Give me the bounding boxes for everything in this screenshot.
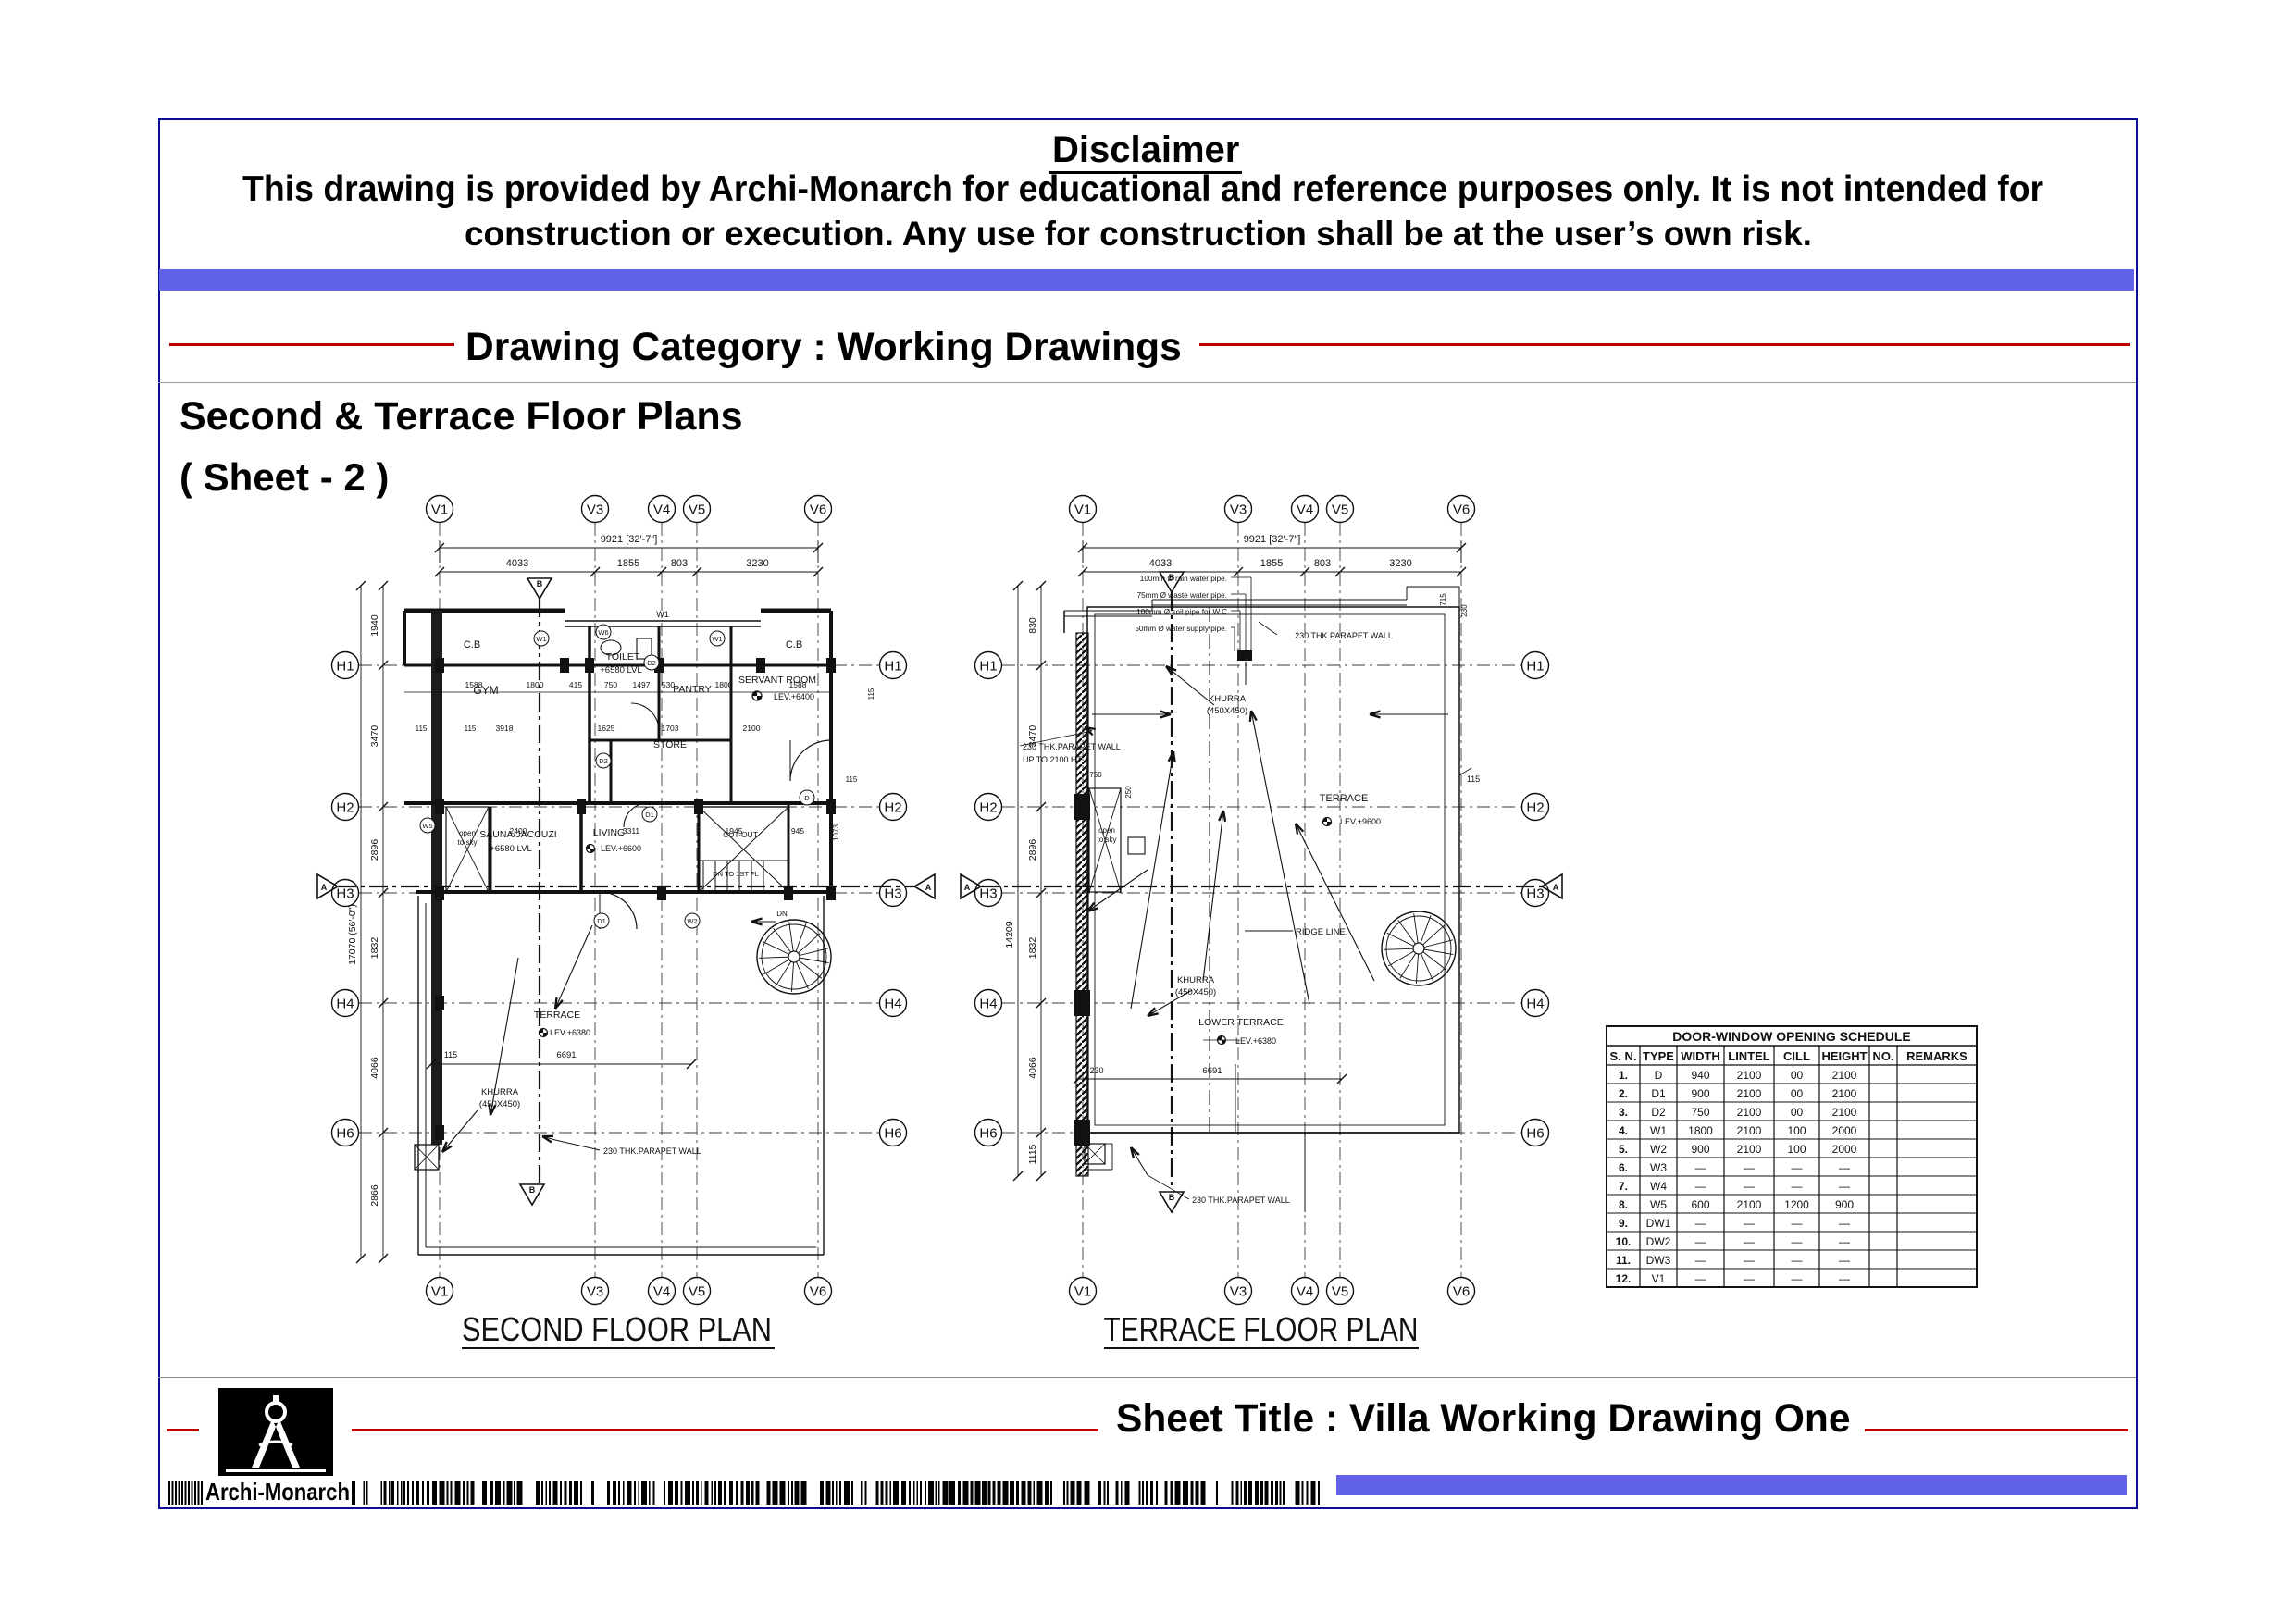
svg-text:1.: 1.: [1619, 1069, 1628, 1082]
svg-text:—: —: [1744, 1180, 1755, 1193]
svg-text:B: B: [1169, 573, 1175, 582]
svg-text:4066: 4066: [369, 1057, 380, 1079]
svg-text:4033: 4033: [1149, 558, 1172, 569]
svg-text:—: —: [1792, 1217, 1803, 1230]
svg-text:REMARKS: REMARKS: [1906, 1049, 1967, 1063]
svg-text:3311: 3311: [623, 826, 640, 836]
svg-text:SECOND FLOOR PLAN: SECOND FLOOR PLAN: [462, 1310, 772, 1348]
svg-text:LINTEL: LINTEL: [1728, 1049, 1770, 1063]
svg-text:6691: 6691: [1202, 1066, 1222, 1076]
svg-text:75mm Ø waste water pipe.: 75mm Ø waste water pipe.: [1137, 591, 1227, 600]
svg-text:KHURRA: KHURRA: [481, 1087, 519, 1097]
svg-text:2100: 2100: [1832, 1087, 1857, 1100]
svg-text:2000: 2000: [1832, 1124, 1857, 1137]
svg-text:D1: D1: [1651, 1087, 1666, 1100]
svg-text:100mm Ø rain water pipe.: 100mm Ø rain water pipe.: [1140, 575, 1227, 583]
svg-text:2100: 2100: [743, 724, 761, 733]
svg-text:2100: 2100: [1737, 1124, 1762, 1137]
svg-text:100: 100: [1787, 1124, 1806, 1137]
svg-text:V5: V5: [1332, 502, 1348, 517]
svg-text:115: 115: [444, 1050, 457, 1059]
svg-text:3230: 3230: [1389, 558, 1411, 569]
svg-text:H1: H1: [884, 658, 901, 674]
svg-text:1945: 1945: [726, 826, 743, 836]
svg-text:8.: 8.: [1619, 1198, 1628, 1211]
svg-text:6691: 6691: [556, 1050, 576, 1060]
svg-text:803: 803: [1314, 558, 1331, 569]
svg-text:115: 115: [1467, 774, 1480, 784]
svg-text:H2: H2: [1526, 799, 1544, 815]
svg-text:LEV.+9600: LEV.+9600: [1340, 817, 1381, 826]
svg-text:PANTRY: PANTRY: [673, 684, 712, 695]
svg-text:2100: 2100: [1737, 1143, 1762, 1156]
svg-text:1588: 1588: [789, 680, 807, 689]
svg-text:115: 115: [416, 725, 428, 733]
svg-text:1800: 1800: [715, 680, 733, 689]
svg-text:11.: 11.: [1616, 1254, 1631, 1267]
svg-text:RIDGE LINE.: RIDGE LINE.: [1296, 927, 1348, 937]
svg-text:2100: 2100: [1737, 1069, 1762, 1082]
svg-text:H3: H3: [1526, 886, 1544, 901]
svg-text:—: —: [1744, 1217, 1755, 1230]
svg-text:H6: H6: [979, 1125, 997, 1141]
svg-text:7.: 7.: [1619, 1180, 1628, 1193]
svg-text:TERRACE FLOOR PLAN: TERRACE FLOOR PLAN: [1104, 1310, 1419, 1348]
svg-text:—: —: [1695, 1217, 1706, 1230]
svg-text:TYPE: TYPE: [1643, 1049, 1674, 1063]
svg-text:—: —: [1695, 1180, 1706, 1193]
svg-text:V3: V3: [1230, 502, 1247, 517]
svg-text:DW1: DW1: [1646, 1217, 1671, 1230]
svg-text:230 THK.PARAPET WALL: 230 THK.PARAPET WALL: [1192, 1196, 1290, 1205]
svg-text:2400: 2400: [510, 826, 527, 836]
svg-text:DN: DN: [776, 910, 788, 918]
svg-text:V5: V5: [689, 502, 705, 517]
svg-text:V4: V4: [1297, 1283, 1313, 1299]
svg-text:B: B: [1169, 1193, 1175, 1202]
svg-text:to sky: to sky: [1098, 836, 1117, 844]
svg-text:D1: D1: [645, 811, 654, 819]
svg-text:V1: V1: [431, 502, 448, 517]
svg-text:—: —: [1744, 1235, 1755, 1248]
svg-text:900: 900: [1691, 1143, 1709, 1156]
svg-text:940: 940: [1691, 1069, 1709, 1082]
svg-text:—: —: [1839, 1272, 1850, 1285]
svg-text:—: —: [1695, 1254, 1706, 1267]
svg-text:1115: 1115: [1027, 1144, 1038, 1164]
svg-text:5.: 5.: [1619, 1143, 1628, 1156]
svg-text:H6: H6: [336, 1125, 354, 1141]
svg-text:KHURRA: KHURRA: [1209, 694, 1247, 704]
svg-text:DN TO 1ST FL: DN TO 1ST FL: [713, 870, 759, 878]
svg-text:2.: 2.: [1619, 1087, 1628, 1100]
svg-text:+6580 LVL: +6580 LVL: [490, 844, 532, 854]
svg-text:100mm Ø soil pipe for W.C: 100mm Ø soil pipe for W.C: [1136, 608, 1227, 616]
svg-text:1800: 1800: [527, 680, 544, 689]
svg-text:—: —: [1744, 1161, 1755, 1174]
svg-text:—: —: [1839, 1217, 1850, 1230]
svg-text:1855: 1855: [1260, 558, 1283, 569]
svg-text:B: B: [529, 1185, 536, 1195]
svg-text:H4: H4: [1526, 996, 1544, 1011]
svg-text:CILL: CILL: [1783, 1049, 1810, 1063]
svg-text:H6: H6: [1526, 1125, 1544, 1141]
svg-text:—: —: [1839, 1254, 1850, 1267]
svg-text:945: 945: [791, 826, 804, 836]
svg-text:to sky: to sky: [458, 838, 478, 847]
svg-text:D2: D2: [599, 757, 608, 765]
svg-text:1855: 1855: [617, 558, 639, 569]
svg-text:9921 [32′-7″]: 9921 [32′-7″]: [601, 534, 658, 545]
svg-text:2100: 2100: [1832, 1106, 1857, 1119]
svg-text:115: 115: [846, 775, 858, 784]
svg-text:W1: W1: [712, 635, 722, 643]
svg-text:250: 250: [1124, 786, 1133, 799]
svg-text:H4: H4: [884, 996, 901, 1011]
svg-text:1800: 1800: [1688, 1124, 1713, 1137]
svg-text:STORE: STORE: [653, 739, 687, 750]
svg-text:W1: W1: [656, 610, 669, 619]
svg-text:2866: 2866: [369, 1184, 380, 1207]
svg-text:V6: V6: [810, 1283, 826, 1299]
svg-text:D1: D1: [597, 917, 606, 925]
svg-text:C.B: C.B: [786, 639, 802, 650]
svg-text:14209: 14209: [1004, 921, 1015, 948]
svg-text:4066: 4066: [1027, 1057, 1038, 1079]
svg-text:00: 00: [1791, 1087, 1804, 1100]
svg-text:W2: W2: [1650, 1143, 1667, 1156]
svg-text:open: open: [459, 829, 476, 837]
svg-text:H3: H3: [336, 886, 354, 901]
svg-text:750: 750: [1089, 771, 1102, 779]
svg-text:H1: H1: [336, 658, 354, 674]
svg-text:1832: 1832: [1027, 937, 1038, 960]
svg-text:6.: 6.: [1619, 1161, 1628, 1174]
svg-text:—: —: [1792, 1272, 1803, 1285]
svg-text:9.: 9.: [1619, 1217, 1628, 1230]
svg-text:415: 415: [569, 680, 582, 689]
svg-text:H4: H4: [336, 996, 354, 1011]
svg-text:12.: 12.: [1616, 1272, 1632, 1285]
svg-text:2100: 2100: [1737, 1198, 1762, 1211]
svg-text:V6: V6: [1453, 1283, 1470, 1299]
svg-text:3.: 3.: [1619, 1106, 1628, 1119]
svg-text:3918: 3918: [496, 724, 514, 733]
svg-text:00: 00: [1791, 1069, 1804, 1082]
svg-text:W1: W1: [1650, 1124, 1667, 1137]
svg-text:1073: 1073: [832, 824, 840, 841]
svg-text:UP TO 2100 HT.: UP TO 2100 HT.: [1023, 755, 1084, 764]
svg-text:(450X450): (450X450): [479, 1099, 520, 1109]
svg-text:230 THK.PARAPET WALL: 230 THK.PARAPET WALL: [1295, 631, 1393, 640]
svg-text:V3: V3: [587, 1283, 603, 1299]
svg-text:1703: 1703: [662, 724, 679, 733]
svg-text:2896: 2896: [369, 839, 380, 861]
svg-text:V1: V1: [431, 1283, 448, 1299]
svg-text:V4: V4: [1297, 502, 1313, 517]
svg-text:1940: 1940: [369, 614, 380, 637]
svg-text:V4: V4: [653, 1283, 670, 1299]
svg-text:V6: V6: [1453, 502, 1470, 517]
svg-text:W5: W5: [1650, 1198, 1667, 1211]
svg-text:NO.: NO.: [1872, 1049, 1893, 1063]
svg-text:V1: V1: [1074, 1283, 1091, 1299]
svg-text:H2: H2: [979, 799, 997, 815]
svg-text:H1: H1: [979, 658, 997, 674]
svg-text:H1: H1: [1526, 658, 1544, 674]
svg-text:803: 803: [671, 558, 688, 569]
svg-text:D: D: [804, 794, 810, 802]
svg-text:4033: 4033: [506, 558, 528, 569]
svg-text:17070 (56′-0″): 17070 (56′-0″): [347, 904, 358, 965]
svg-text:—: —: [1792, 1235, 1803, 1248]
svg-text:A: A: [321, 883, 328, 892]
svg-text:A: A: [925, 883, 932, 892]
svg-text:115: 115: [465, 725, 477, 733]
svg-text:V3: V3: [587, 502, 603, 517]
svg-text:2100: 2100: [1832, 1069, 1857, 1082]
svg-text:900: 900: [1691, 1087, 1709, 1100]
svg-text:A: A: [1553, 883, 1559, 892]
svg-text:DW2: DW2: [1646, 1235, 1671, 1248]
svg-text:V3: V3: [1230, 1283, 1247, 1299]
svg-text:D2: D2: [647, 659, 656, 667]
svg-text:LEV.+6380: LEV.+6380: [550, 1028, 590, 1037]
svg-text:1588: 1588: [465, 680, 483, 689]
svg-text:TERRACE: TERRACE: [1320, 793, 1369, 804]
svg-text:10.: 10.: [1616, 1235, 1632, 1248]
svg-text:H3: H3: [884, 886, 901, 901]
svg-text:530: 530: [662, 680, 675, 689]
svg-text:230 THK.PARAPET WALL: 230 THK.PARAPET WALL: [1023, 742, 1121, 751]
svg-text:V6: V6: [810, 502, 826, 517]
svg-text:2100: 2100: [1737, 1106, 1762, 1119]
svg-text:750: 750: [604, 680, 617, 689]
svg-text:100: 100: [1787, 1143, 1806, 1156]
svg-text:1497: 1497: [633, 680, 651, 689]
svg-text:—: —: [1792, 1254, 1803, 1267]
svg-text:HEIGHT: HEIGHT: [1821, 1049, 1867, 1063]
svg-text:B: B: [537, 579, 543, 588]
svg-text:4.: 4.: [1619, 1124, 1628, 1137]
svg-text:3230: 3230: [746, 558, 768, 569]
svg-text:50mm Ø water supply pipe.: 50mm Ø water supply pipe.: [1135, 625, 1227, 633]
svg-text:—: —: [1695, 1161, 1706, 1174]
svg-text:TOILET: TOILET: [606, 651, 640, 663]
svg-text:—: —: [1839, 1235, 1850, 1248]
svg-text:V1: V1: [1074, 502, 1091, 517]
svg-text:W4: W4: [1650, 1180, 1667, 1193]
svg-text:W1: W1: [536, 635, 546, 643]
svg-text:C.B: C.B: [464, 639, 480, 650]
svg-text:open: open: [1098, 826, 1115, 835]
svg-text:V5: V5: [1332, 1283, 1348, 1299]
svg-text:LEV.+6400: LEV.+6400: [774, 692, 814, 701]
svg-text:00: 00: [1791, 1106, 1804, 1119]
svg-text:W2: W2: [687, 917, 697, 925]
svg-text:715: 715: [1439, 593, 1447, 606]
svg-text:+6580 LVL: +6580 LVL: [600, 665, 642, 675]
svg-text:1832: 1832: [369, 937, 380, 960]
svg-text:230 THK.PARAPET WALL: 230 THK.PARAPET WALL: [603, 1146, 701, 1156]
svg-text:H6: H6: [884, 1125, 901, 1141]
svg-text:W5: W5: [422, 822, 432, 830]
svg-text:830: 830: [1027, 617, 1038, 634]
svg-text:V1: V1: [1652, 1272, 1666, 1285]
svg-text:230: 230: [1089, 1066, 1103, 1075]
svg-text:S. N.: S. N.: [1610, 1049, 1637, 1063]
svg-text:3470: 3470: [369, 725, 380, 748]
svg-text:2896: 2896: [1027, 839, 1038, 861]
svg-text:1625: 1625: [598, 724, 615, 733]
svg-text:—: —: [1792, 1180, 1803, 1193]
svg-text:WIDTH: WIDTH: [1681, 1049, 1720, 1063]
svg-text:A: A: [964, 883, 971, 892]
svg-text:—: —: [1695, 1272, 1706, 1285]
svg-text:115: 115: [867, 688, 875, 700]
svg-text:H4: H4: [979, 996, 997, 1011]
svg-text:TERRACE: TERRACE: [534, 1010, 580, 1021]
svg-text:V5: V5: [689, 1283, 705, 1299]
svg-text:D: D: [1655, 1069, 1663, 1082]
svg-text:9921 [32′-7″]: 9921 [32′-7″]: [1244, 534, 1301, 545]
svg-text:H2: H2: [336, 799, 354, 815]
svg-text:V4: V4: [653, 502, 670, 517]
svg-text:—: —: [1695, 1235, 1706, 1248]
svg-text:900: 900: [1835, 1198, 1854, 1211]
svg-text:DW3: DW3: [1646, 1254, 1671, 1267]
svg-text:(450X450): (450X450): [1207, 706, 1247, 716]
svg-text:LEV.+6600: LEV.+6600: [601, 844, 641, 853]
svg-text:2100: 2100: [1737, 1087, 1762, 1100]
svg-text:DOOR-WINDOW OPENING SCHEDULE: DOOR-WINDOW OPENING SCHEDULE: [1672, 1029, 1910, 1044]
svg-text:D2: D2: [1651, 1106, 1666, 1119]
svg-text:750: 750: [1691, 1106, 1709, 1119]
svg-text:H3: H3: [979, 886, 997, 901]
svg-text:1200: 1200: [1784, 1198, 1809, 1211]
svg-text:—: —: [1744, 1272, 1755, 1285]
svg-text:230: 230: [1460, 604, 1469, 617]
svg-text:—: —: [1839, 1161, 1850, 1174]
svg-text:LEV.+6380: LEV.+6380: [1235, 1036, 1276, 1046]
svg-text:—: —: [1792, 1161, 1803, 1174]
svg-text:W3: W3: [1650, 1161, 1667, 1174]
svg-text:—: —: [1839, 1180, 1850, 1193]
svg-text:600: 600: [1691, 1198, 1709, 1211]
svg-text:W6: W6: [598, 628, 608, 637]
svg-text:2000: 2000: [1832, 1143, 1857, 1156]
svg-text:LOWER TERRACE: LOWER TERRACE: [1198, 1017, 1283, 1028]
svg-text:—: —: [1744, 1254, 1755, 1267]
svg-text:H2: H2: [884, 799, 901, 815]
svg-text:LIVING: LIVING: [593, 827, 625, 838]
